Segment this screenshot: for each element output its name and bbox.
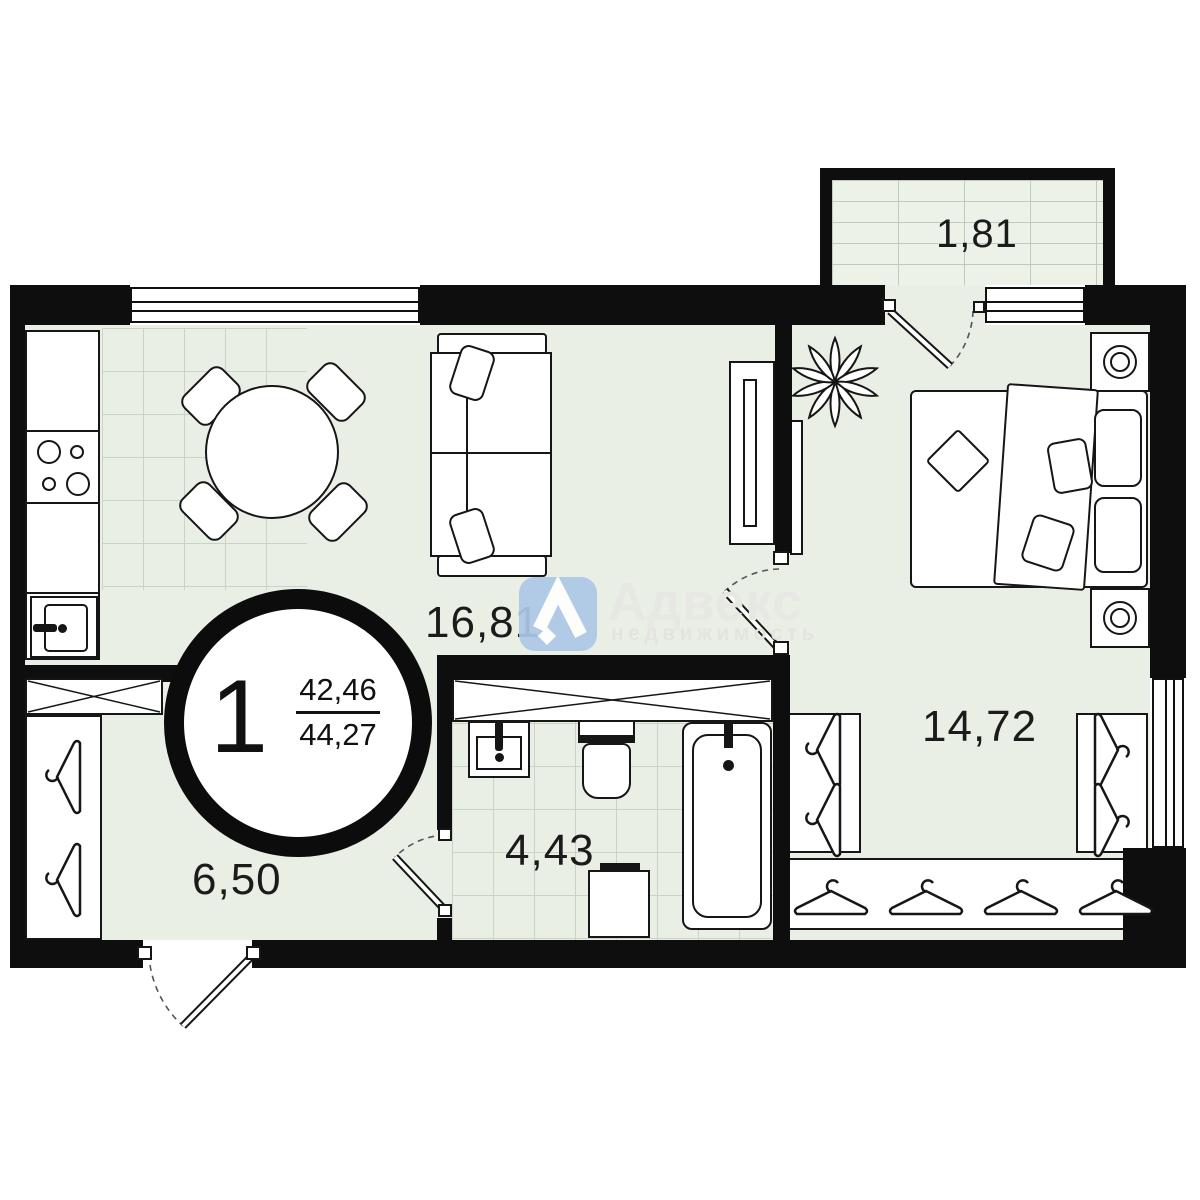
bathroom-door-post: [438, 828, 452, 841]
sofa-body: [430, 352, 552, 557]
window-kitchen: [130, 287, 420, 323]
hall-wardrobe: [25, 715, 102, 940]
wall-partition-living-bedroom: [775, 325, 792, 553]
bathroom-door-post: [438, 904, 452, 917]
wall-right-upper: [1150, 285, 1186, 678]
nightstand-lamp-icon: [1110, 608, 1130, 628]
sofa-seam: [432, 452, 550, 454]
bedroom-wardrobe-right: [1076, 713, 1148, 853]
washing-machine: [588, 870, 650, 938]
wall-right-lower: [1150, 848, 1186, 968]
balcony-wall-right: [1103, 180, 1115, 285]
wall-right-corner: [1123, 848, 1153, 940]
room-label-hallway: 6,50: [192, 855, 282, 905]
wall-bathroom-left: [437, 680, 452, 830]
wall-left: [10, 285, 25, 968]
stove-burner: [42, 477, 56, 491]
faucet-dot: [723, 760, 734, 771]
window-pane-line: [1165, 680, 1167, 846]
entrance-door-post: [246, 946, 261, 960]
window-pane-line: [132, 310, 418, 312]
faucet-icon: [495, 721, 503, 751]
wall-bathroom-top: [437, 655, 790, 680]
bed-pillow: [1094, 497, 1142, 573]
wall-bathroom-right: [773, 655, 790, 940]
bedroom-wardrobe-left: [786, 713, 861, 853]
bathroom-storage-box: [452, 678, 773, 722]
hall-storage-box: [25, 678, 163, 715]
dining-table: [205, 385, 339, 519]
window-bedroom: [1152, 678, 1184, 848]
wall-bathroom-left-stub: [437, 918, 452, 940]
wall-top-left: [10, 285, 130, 325]
counter-divider: [25, 592, 100, 594]
balcony-wall-top: [820, 168, 1115, 180]
window-pane-line: [987, 310, 1083, 312]
sofa-armrest: [437, 555, 547, 577]
wall-bottom: [252, 940, 1163, 968]
room-label-bathroom: 4,43: [505, 826, 595, 876]
advex-logo-icon: [519, 577, 597, 651]
bedroom-wardrobe-bottom: [786, 858, 1148, 930]
stove-burner: [37, 440, 61, 464]
nightstand-lamp-icon: [1110, 352, 1130, 372]
window-pane-line: [987, 301, 1083, 303]
room-label-balcony: 1,81: [936, 212, 1018, 257]
faucet-dot: [495, 753, 504, 762]
balcony-wall-left: [820, 180, 832, 285]
tv-screen-living: [743, 379, 757, 527]
wall-bottom-left: [10, 940, 143, 968]
washing-machine-panel: [600, 863, 640, 872]
faucet-icon: [724, 720, 733, 748]
floor-plan: 16,81 14,72 6,50 4,43 1,81 1 42,46 44,27…: [0, 0, 1200, 1200]
bedroom-door-post: [773, 551, 789, 565]
bed-pillow: [1094, 409, 1142, 487]
entrance-door-post: [137, 946, 152, 960]
window-pane-line: [132, 301, 418, 303]
unit-badge: 1 42,46 44,27: [164, 589, 432, 857]
stove-burner: [70, 445, 84, 459]
area-fraction: 42,46 44,27: [294, 673, 382, 752]
wall-top-right: [1085, 285, 1150, 325]
rooms-count: 1: [208, 665, 270, 769]
counter-divider: [25, 430, 100, 432]
balcony-doorway-floor: [885, 285, 985, 325]
stove-burner: [66, 472, 90, 496]
faucet-dot: [58, 624, 67, 633]
entrance-door-arc: [150, 965, 183, 1026]
balcony-door-post: [882, 299, 896, 312]
fraction-bar: [296, 711, 380, 714]
living-area-value: 42,46: [294, 673, 382, 707]
total-area-value: 44,27: [294, 718, 382, 752]
toilet-bowl: [582, 743, 631, 799]
watermark-subtitle: недвижимость: [611, 622, 819, 646]
counter-divider: [25, 502, 100, 504]
window-balcony: [985, 287, 1085, 323]
faucet-icon: [33, 624, 57, 632]
advex-lambda-icon: [519, 577, 597, 651]
window-pane-line: [1173, 680, 1175, 846]
wall-top-mid: [420, 285, 885, 325]
balcony-door-post: [973, 301, 985, 313]
toilet-seat-bar: [578, 735, 635, 743]
room-label-bedroom: 14,72: [922, 702, 1037, 752]
